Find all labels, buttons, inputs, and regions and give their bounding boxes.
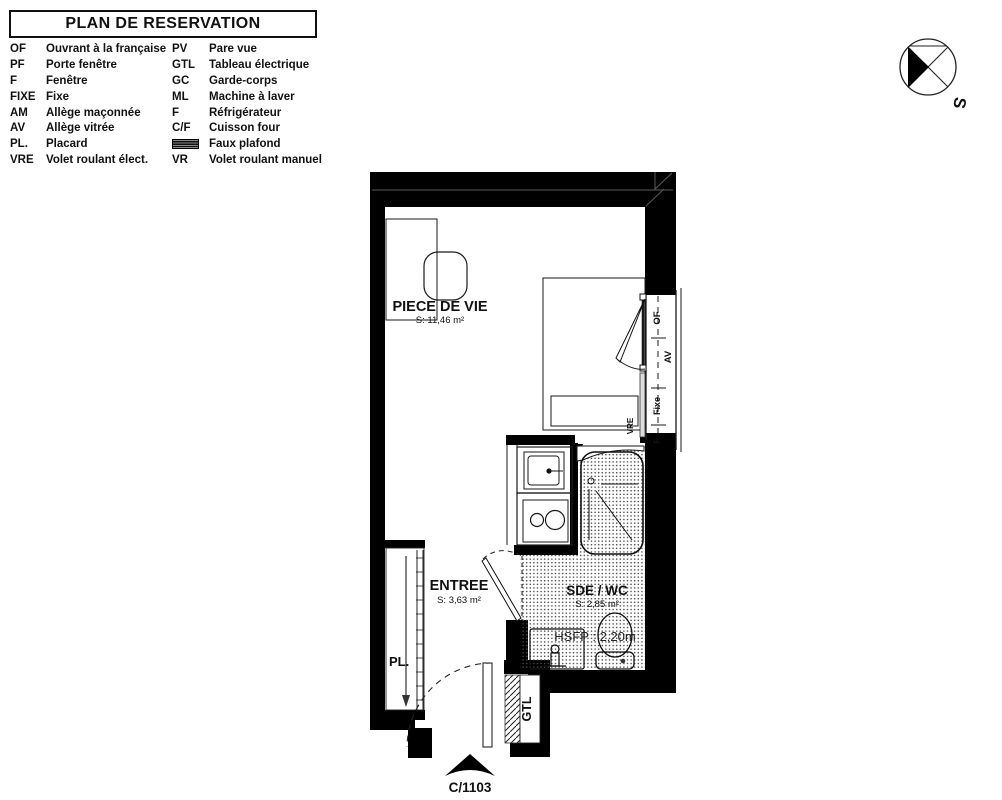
cooktop-unit [517,493,572,545]
kitchen [507,445,572,545]
ceiling-height-label: HSFP : 2,20m [554,629,635,644]
fixed-window-sash [640,373,645,437]
of-hinge-bottom [640,365,646,371]
placard: PL. [386,548,424,710]
entree-label: ENTREE [430,578,489,594]
sde-wc-area: S: 2,85 m² [575,599,619,610]
entrance-door-leaf [483,663,492,747]
window-f-label: F [652,438,662,444]
window-fixe-label: Fixe [652,397,662,415]
piece-de-vie: PIECE DE VIE S: 11,46 m² [386,219,645,430]
bed-pillow [551,396,638,426]
of-door-leaf [616,299,645,362]
floor-plan-page: PLAN DE RESERVATION OFOuvrant à la franç… [0,0,1002,800]
gtl-label: GTL [520,696,534,721]
faux-plafond-area-shower [578,446,645,555]
unit-marker: C/1103 [445,754,495,795]
burner-large [546,511,565,530]
compass-south-label: S [949,96,970,110]
compass-needle [908,47,929,88]
window-band: OF AV Fixe F VRE [616,288,681,452]
unit-ref-label: C/1103 [449,780,492,795]
bed [543,278,645,430]
gtl-closet: GTL [505,675,540,743]
entree-area: S: 3,63 m² [437,595,481,606]
sde-wc-label: SDE / WC [566,583,628,598]
table [424,252,467,300]
gtl-hatch-panel [505,675,520,743]
piece-de-vie-area: S: 11,46 m² [416,315,464,326]
floor-plan-drawing: PIECE DE VIE S: 11,46 m² OF AV Fixe F VR… [0,0,1002,800]
placard-label: PL. [389,654,409,669]
window-av-label: AV [663,350,674,363]
window-of-label: OF [652,311,663,324]
shutter-vre-label: VRE [626,417,635,434]
entrance-arrow [445,754,495,776]
piece-de-vie-label: PIECE DE VIE [392,299,487,315]
compass: S [900,39,970,110]
burner-small [531,514,544,527]
